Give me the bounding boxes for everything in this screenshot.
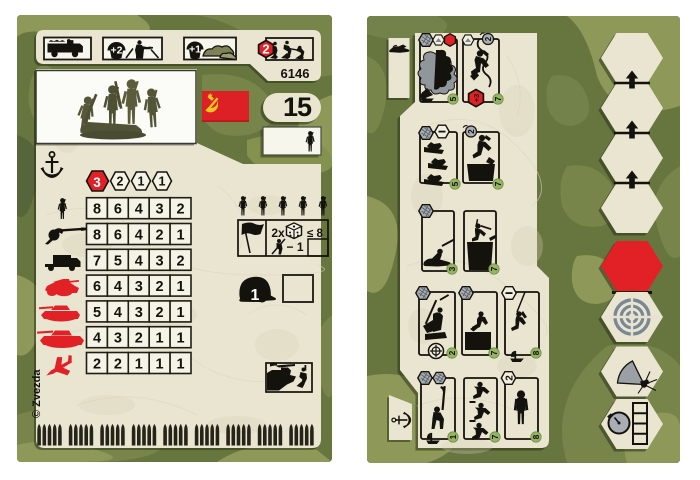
svg-text:7: 7 [93, 253, 101, 269]
svg-text:6: 6 [93, 279, 101, 295]
svg-text:2: 2 [447, 350, 457, 355]
svg-text:1: 1 [135, 357, 143, 373]
svg-text:2: 2 [484, 36, 493, 41]
svg-text:1: 1 [159, 175, 166, 189]
svg-text:2: 2 [93, 357, 101, 373]
svg-text:7: 7 [490, 434, 500, 439]
svg-text:8: 8 [531, 434, 541, 439]
svg-text:1: 1 [156, 331, 164, 347]
svg-text:5: 5 [448, 96, 458, 101]
svg-text:5: 5 [450, 181, 460, 186]
svg-text:4: 4 [135, 202, 143, 218]
svg-text:3: 3 [156, 202, 164, 218]
svg-text:2: 2 [262, 42, 269, 57]
svg-text:7: 7 [493, 181, 503, 186]
svg-text:1: 1 [176, 228, 184, 244]
svg-text:7: 7 [489, 350, 499, 355]
svg-text:© Zvezda: © Zvezda [31, 369, 43, 418]
svg-text:15: 15 [283, 92, 312, 122]
svg-text:2: 2 [114, 357, 122, 373]
svg-text:2: 2 [176, 253, 184, 269]
svg-text:3: 3 [114, 331, 122, 347]
svg-text:2: 2 [156, 279, 164, 295]
svg-text:3: 3 [135, 305, 143, 321]
svg-text:4: 4 [93, 331, 101, 347]
svg-text:1: 1 [176, 279, 184, 295]
svg-text:6146: 6146 [281, 66, 310, 81]
svg-text:1: 1 [156, 357, 164, 373]
svg-text:+3: +3 [472, 94, 481, 103]
svg-text:2: 2 [505, 375, 516, 381]
svg-text:1: 1 [251, 287, 260, 304]
svg-text:2: 2 [117, 175, 124, 189]
svg-text:− 1: − 1 [286, 240, 303, 254]
svg-text:+1: +1 [189, 44, 201, 56]
svg-text:8: 8 [93, 202, 101, 218]
svg-text:4: 4 [135, 228, 143, 244]
svg-text:3: 3 [93, 175, 101, 190]
svg-text:≤ 8: ≤ 8 [307, 228, 324, 240]
svg-text:6: 6 [114, 228, 122, 244]
svg-text:5: 5 [93, 305, 101, 321]
svg-text:4: 4 [114, 305, 122, 321]
svg-text:6: 6 [114, 202, 122, 218]
svg-text:1: 1 [448, 434, 458, 439]
svg-text:1: 1 [138, 175, 145, 189]
svg-text:1: 1 [176, 305, 184, 321]
svg-text:2x: 2x [271, 226, 285, 240]
svg-text:2: 2 [176, 202, 184, 218]
svg-text:7: 7 [493, 96, 503, 101]
svg-text:2: 2 [135, 331, 143, 347]
svg-text:5: 5 [114, 253, 122, 269]
svg-text:3: 3 [156, 253, 164, 269]
svg-text:3: 3 [135, 279, 143, 295]
svg-text:4: 4 [114, 279, 122, 295]
svg-text:8: 8 [93, 228, 101, 244]
svg-text:2: 2 [156, 305, 164, 321]
svg-text:8: 8 [531, 350, 541, 355]
svg-text:1: 1 [176, 331, 184, 347]
svg-text:7: 7 [489, 266, 499, 271]
svg-text:+2: +2 [111, 45, 123, 57]
svg-text:3: 3 [447, 266, 457, 271]
svg-text:2: 2 [156, 228, 164, 244]
svg-text:2: 2 [467, 129, 476, 134]
svg-text:4: 4 [135, 253, 143, 269]
svg-text:1: 1 [176, 357, 184, 373]
